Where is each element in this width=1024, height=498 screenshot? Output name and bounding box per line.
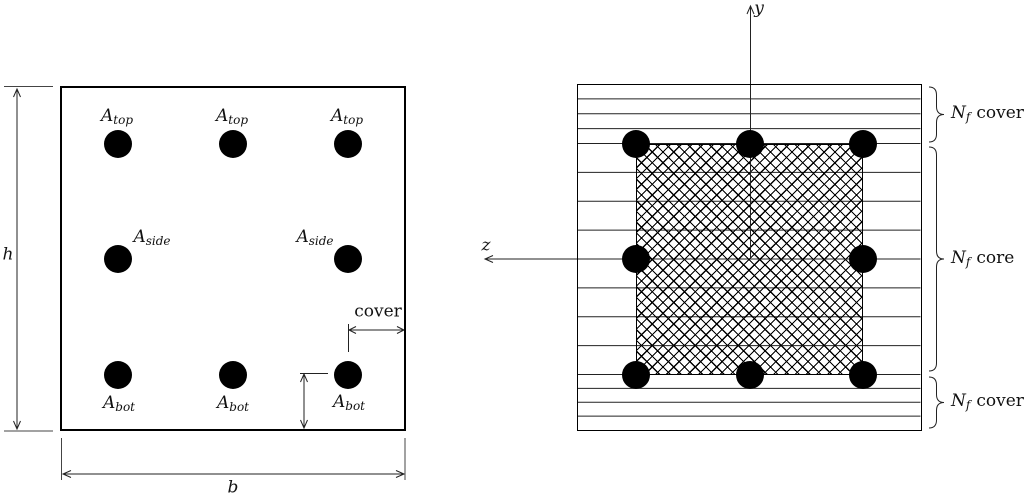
label-a-top-3: Atop xyxy=(331,108,363,126)
fiber-dot-bot-left xyxy=(622,361,650,389)
nf-word: cover xyxy=(976,391,1024,411)
a-side-sym: A xyxy=(133,227,145,247)
z-axis-label: z xyxy=(482,238,491,255)
nf-sym: N xyxy=(951,103,966,123)
rebar-dot-top-right xyxy=(334,130,362,158)
a-bot-sym: A xyxy=(103,393,115,413)
rebar-dot-top-left xyxy=(104,130,132,158)
a-side-sub: side xyxy=(146,234,171,248)
a-bot-sub: bot xyxy=(229,400,249,414)
brace-core xyxy=(929,147,944,371)
label-a-bot-2: Abot xyxy=(217,395,249,413)
fiber-dot-top-center xyxy=(736,130,764,158)
a-side-sub: side xyxy=(309,234,334,248)
a-top-sub: top xyxy=(343,113,363,127)
label-a-side-1: Aside xyxy=(133,229,170,247)
b-dimension-label: b xyxy=(228,480,239,497)
h-arrow-down-icon xyxy=(14,421,21,429)
label-nf-cover-bottom: Nfcover xyxy=(951,393,1024,411)
label-a-top-1: Atop xyxy=(101,108,133,126)
fiber-dot-top-right xyxy=(849,130,877,158)
a-bot-sub: bot xyxy=(115,400,135,414)
rebar-dot-side-left xyxy=(104,245,132,273)
brace-cover-top xyxy=(929,87,944,142)
label-a-side-2: Aside xyxy=(296,229,333,247)
nf-sym: N xyxy=(951,248,966,268)
b-arrow-left-icon xyxy=(63,471,71,478)
a-top-sym: A xyxy=(101,106,113,126)
nf-sub: f xyxy=(966,110,970,124)
fiber-dot-bot-center xyxy=(736,361,764,389)
fiber-dot-mid-right xyxy=(849,245,877,273)
label-a-bot-3: Abot xyxy=(333,394,365,412)
fiber-dot-bot-right xyxy=(849,361,877,389)
label-nf-cover-top: Nfcover xyxy=(951,105,1024,123)
nf-sub: f xyxy=(966,255,970,269)
h-dimension-label: h xyxy=(3,247,14,264)
h-arrow-up-icon xyxy=(14,89,21,97)
figure-canvas: Atop Atop Atop Aside Aside Abot Abot Abo… xyxy=(0,0,1024,498)
label-nf-core: Nfcore xyxy=(951,250,1014,268)
rebar-dot-bot-left xyxy=(104,361,132,389)
rebar-dot-top-center xyxy=(219,130,247,158)
y-axis-arrow-icon xyxy=(747,6,754,14)
rebar-dot-side-right xyxy=(334,245,362,273)
nf-sub: f xyxy=(966,398,970,412)
a-top-sub: top xyxy=(228,113,248,127)
a-bot-sub: bot xyxy=(345,399,365,413)
fiber-dot-top-left xyxy=(622,130,650,158)
a-bot-sym: A xyxy=(217,393,229,413)
a-top-sub: top xyxy=(113,113,133,127)
a-side-sym: A xyxy=(296,227,308,247)
rebar-dot-bot-right xyxy=(334,361,362,389)
rebar-dot-bot-center xyxy=(219,361,247,389)
nf-word: cover xyxy=(976,103,1024,123)
fiber-dot-mid-left xyxy=(622,245,650,273)
a-top-sym: A xyxy=(216,106,228,126)
nf-sym: N xyxy=(951,391,966,411)
cover-dimension-label: cover xyxy=(354,304,402,321)
brace-cover-bottom xyxy=(929,377,944,428)
a-top-sym: A xyxy=(331,106,343,126)
b-arrow-right-icon xyxy=(396,471,404,478)
nf-word: core xyxy=(976,248,1014,268)
a-bot-sym: A xyxy=(333,392,345,412)
y-axis-label: y xyxy=(754,1,764,18)
label-a-top-2: Atop xyxy=(216,108,248,126)
label-a-bot-1: Abot xyxy=(103,395,135,413)
z-axis-arrow-icon xyxy=(485,256,493,263)
